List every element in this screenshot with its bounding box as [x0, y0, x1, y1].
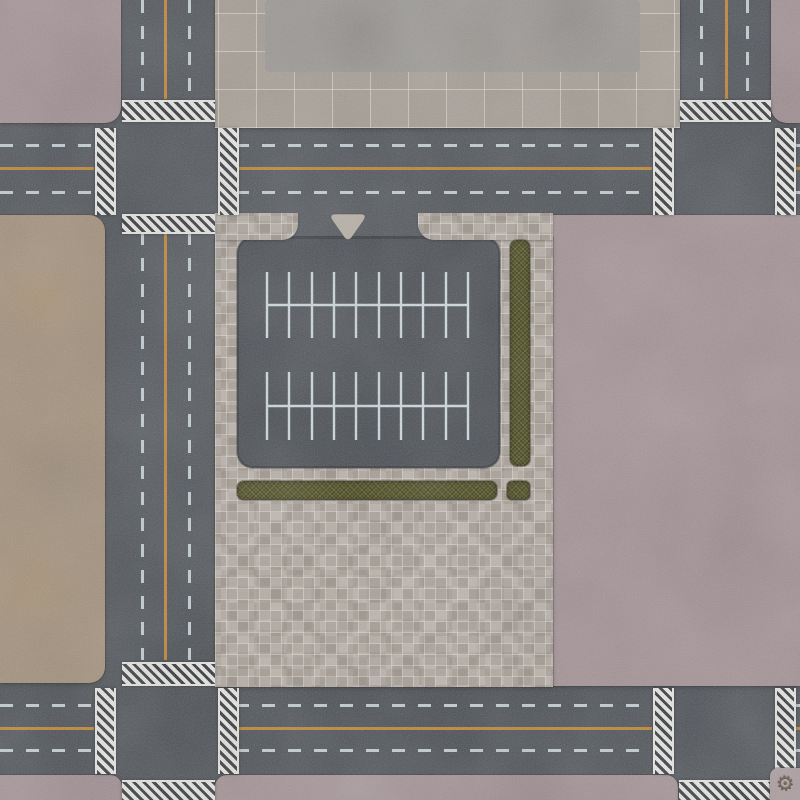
- curb-strip-left: [215, 213, 298, 240]
- crosswalk: [122, 100, 215, 122]
- center-line-orange: [164, 232, 167, 660]
- crosswalk: [775, 128, 796, 215]
- lane-dash-line: [746, 0, 749, 99]
- concrete-pad-left: [0, 215, 105, 683]
- crosswalk: [653, 688, 674, 774]
- crosswalk: [653, 128, 674, 215]
- parking-lot: [237, 237, 500, 468]
- lane-dash-line: [141, 232, 144, 660]
- lane-dash-line: [0, 749, 94, 752]
- lane-dash-line: [141, 0, 144, 99]
- crosswalk: [122, 780, 215, 800]
- center-line-orange: [0, 727, 94, 730]
- center-line-orange: [164, 0, 167, 99]
- lane-dash-line: [0, 191, 94, 194]
- lane-dash-line: [0, 144, 94, 147]
- lane-dash-line: [236, 704, 652, 707]
- concrete-pad-bottom-left: [0, 775, 122, 800]
- crosswalk: [775, 688, 796, 774]
- traffic-island-triangle: [328, 212, 368, 242]
- hedge-horizontal: [237, 481, 497, 500]
- lane-dash-line: [236, 191, 652, 194]
- center-line-orange: [725, 0, 728, 99]
- lane-dash-line: [236, 749, 652, 752]
- lane-dash-line: [188, 0, 191, 99]
- lane-dash-line: [188, 232, 191, 660]
- crosswalk: [95, 688, 116, 774]
- center-line-orange: [236, 727, 652, 730]
- concrete-pad-top-left: [0, 0, 121, 123]
- center-line-orange: [236, 167, 652, 170]
- crosswalk: [122, 214, 215, 234]
- concrete-plaza-right: [553, 215, 800, 686]
- crosswalk: [679, 780, 773, 800]
- center-line-orange: [0, 167, 94, 170]
- lane-dash-line: [236, 144, 652, 147]
- rough-concrete-patch: [265, 0, 640, 72]
- crosswalk: [95, 128, 116, 215]
- parking-bay-lines: [237, 237, 500, 468]
- crosswalk: [122, 662, 215, 686]
- hedge-vertical: [510, 240, 530, 466]
- game-mat-city-streets: ⚙: [0, 0, 800, 800]
- lane-dash-line: [700, 0, 703, 99]
- manufacturer-logo-pad: ⚙: [770, 768, 800, 800]
- gear-icon: ⚙: [774, 772, 796, 795]
- lane-dash-line: [0, 704, 94, 707]
- crosswalk: [218, 128, 239, 215]
- concrete-pad-bottom-middle: [215, 775, 678, 800]
- curb-strip-right: [418, 213, 553, 240]
- hedge-square: [507, 481, 530, 500]
- crosswalk: [218, 688, 239, 774]
- concrete-pad-top-right: [771, 0, 800, 123]
- crosswalk: [680, 100, 771, 122]
